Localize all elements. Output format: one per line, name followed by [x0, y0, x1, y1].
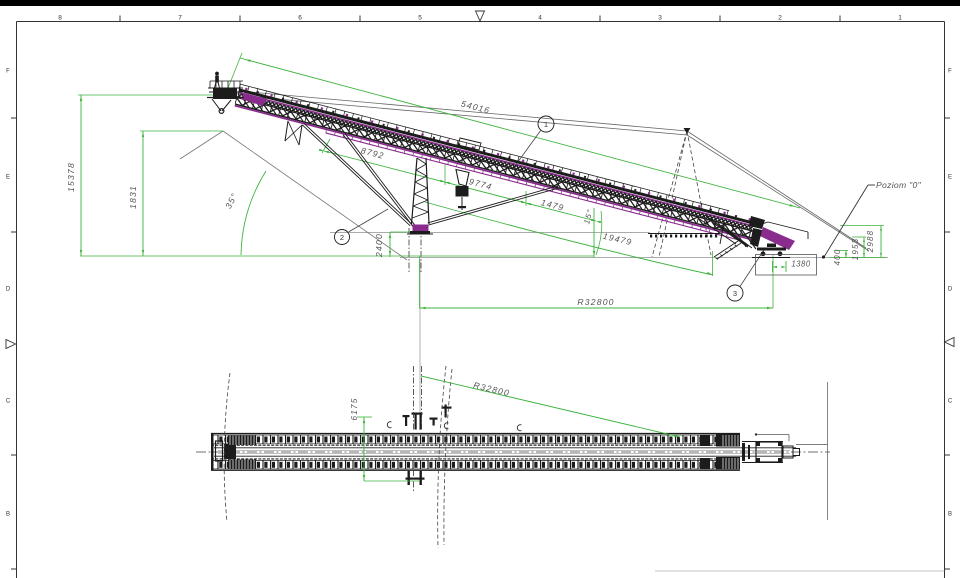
- svg-text:5: 5: [418, 15, 422, 22]
- svg-text:Poziom "0": Poziom "0": [876, 180, 922, 190]
- svg-text:1: 1: [898, 15, 902, 22]
- svg-text:R32800: R32800: [577, 297, 614, 307]
- svg-text:6175: 6175: [350, 397, 359, 420]
- svg-text:D: D: [948, 287, 953, 293]
- svg-text:2400: 2400: [374, 233, 384, 258]
- svg-text:3: 3: [658, 15, 662, 22]
- svg-text:E: E: [6, 175, 10, 181]
- svg-text:7: 7: [178, 15, 182, 22]
- svg-text:2: 2: [778, 15, 782, 22]
- svg-text:B: B: [6, 512, 10, 518]
- svg-text:3: 3: [733, 289, 737, 298]
- svg-text:2: 2: [340, 233, 344, 242]
- svg-text:1953: 1953: [851, 238, 860, 261]
- svg-text:F: F: [948, 69, 952, 75]
- svg-text:D: D: [6, 287, 11, 293]
- svg-text:15378: 15378: [66, 162, 76, 192]
- svg-text:B: B: [948, 512, 952, 518]
- svg-text:6: 6: [298, 15, 302, 22]
- svg-text:4: 4: [538, 15, 542, 22]
- svg-text:2988: 2988: [866, 230, 875, 254]
- svg-text:400: 400: [833, 249, 842, 266]
- svg-text:8: 8: [58, 15, 62, 22]
- svg-text:C: C: [948, 399, 953, 405]
- svg-text:F: F: [6, 69, 10, 75]
- svg-text:1: 1: [544, 120, 548, 129]
- svg-text:E: E: [948, 175, 952, 181]
- svg-text:1380: 1380: [791, 260, 811, 269]
- svg-text:1831: 1831: [128, 185, 138, 209]
- svg-text:C: C: [6, 399, 11, 405]
